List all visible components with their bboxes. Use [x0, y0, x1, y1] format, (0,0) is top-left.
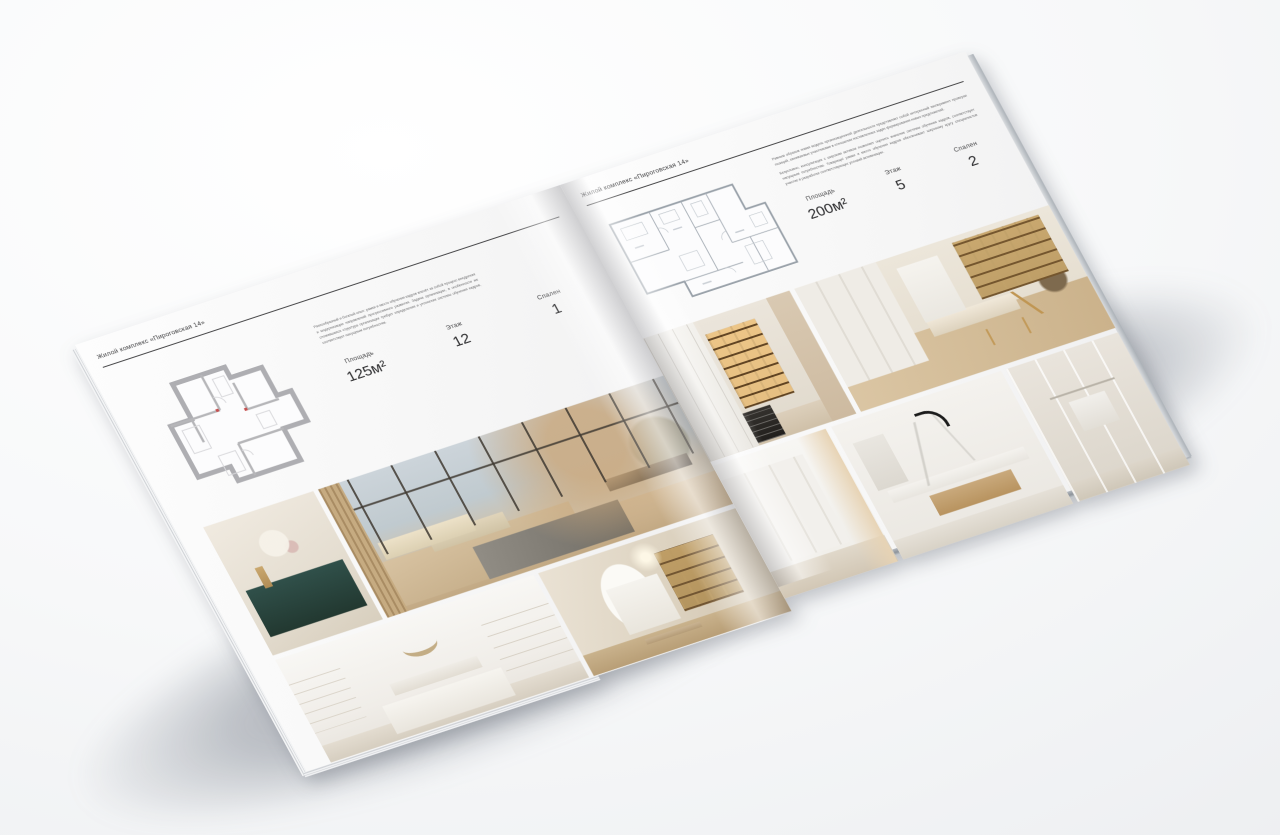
magazine-spread: Жилой комплекс «Пироговская 14»: [75, 51, 1197, 771]
stat-area: Площадь 125м²: [333, 346, 396, 387]
left-page-title: Жилой комплекс «Пироговская 14»: [96, 319, 207, 361]
stat-floor: Этаж 5: [867, 159, 930, 200]
moon-decor: [396, 629, 441, 660]
stat-area: Площадь 200м²: [794, 183, 857, 224]
stat-bedrooms: Спален 1: [523, 283, 586, 324]
scene-background: Жилой комплекс «Пироговская 14»: [0, 0, 1280, 835]
black-faucet: [914, 405, 951, 434]
stat-floor: Этаж 12: [428, 315, 491, 356]
stat-bedrooms: Спален 2: [939, 135, 1002, 176]
floor-plan-125m2: [128, 337, 342, 513]
